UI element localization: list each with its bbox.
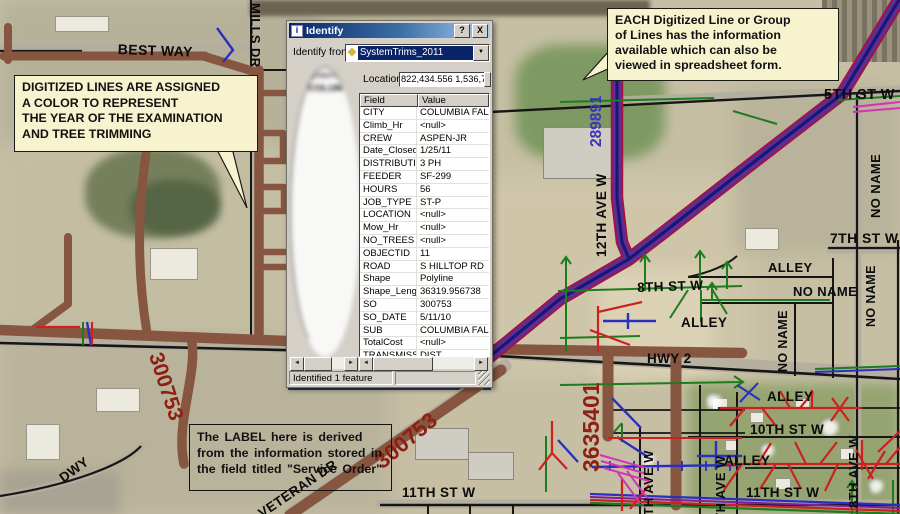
table-hscrollbar[interactable]: ◄ ► (359, 357, 488, 369)
table-row[interactable]: TRANSMISSIDIST (360, 350, 489, 357)
field-cell: FEEDER (360, 171, 417, 183)
status-bar: Identified 1 feature (289, 371, 490, 385)
field-cell: OBJECTID (360, 248, 417, 260)
callout-line: of Lines has the information (615, 28, 831, 43)
table-row[interactable]: Climb_Hr<null> (360, 120, 489, 133)
identify-from-label: Identify from: (293, 47, 353, 58)
field-cell: JOB_TYPE (360, 197, 417, 209)
close-button[interactable]: X (472, 24, 488, 38)
value-cell: S HILLTOP RD (417, 261, 489, 273)
table-row[interactable]: LOCATION<null> (360, 209, 489, 222)
selected-layer: SystemTrims_2011 (358, 46, 473, 60)
callout-line: THE YEAR OF THE EXAMINATION (22, 111, 250, 127)
street-label: 5TH ST W (824, 88, 895, 103)
layer-icon: ❖ (347, 48, 357, 59)
tree-root-label: SystemTrims_2011 (305, 70, 360, 81)
value-cell: ASPEN-JR (417, 133, 489, 145)
results-tree[interactable]: − SystemTrims_2011 COLUMBIA FALLS (290, 67, 360, 357)
help-button[interactable]: ? (454, 24, 470, 38)
value-column-header[interactable]: Value (418, 94, 489, 107)
table-row[interactable]: CREWASPEN-JR (360, 133, 489, 146)
callout-line: The LABEL here is derived (197, 429, 384, 445)
service-order-label: 289891 (589, 95, 605, 147)
table-row[interactable]: SO300753 (360, 299, 489, 312)
dialog-title: Identify (306, 25, 452, 37)
collapse-icon[interactable]: − (293, 71, 303, 81)
field-cell: Climb_Hr (360, 120, 417, 132)
value-cell: <null> (417, 120, 489, 132)
value-cell: ST-P (417, 197, 489, 209)
dialog-titlebar[interactable]: i Identify ? X (289, 23, 490, 38)
value-cell: 3 PH (417, 158, 489, 170)
street-label: NO NAME (793, 285, 857, 298)
status-panel (395, 371, 476, 385)
tree-item-columbia-falls[interactable]: COLUMBIA FALLS (291, 81, 359, 94)
value-cell: 1/25/11 (417, 145, 489, 157)
field-cell: SUB (360, 325, 417, 337)
tree-child-label: COLUMBIA FALLS (308, 83, 360, 94)
scroll-left-icon[interactable]: ◄ (290, 357, 304, 371)
callout-label-derived: The LABEL here is derived from the infor… (189, 424, 392, 491)
table-row[interactable]: SUBCOLUMBIA FALLS (360, 325, 489, 338)
identify-icon: i (291, 25, 303, 37)
value-cell: 11 (417, 248, 489, 260)
location-button[interactable] (484, 72, 491, 87)
table-row[interactable]: JOB_TYPEST-P (360, 197, 489, 210)
map-canvas: BEST WAYMILLS DR5TH ST W7TH ST WNO NAMEA… (0, 0, 900, 514)
service-order-label: 300753 (145, 350, 187, 423)
callout-line: DIGITIZED LINES ARE ASSIGNED (22, 80, 250, 96)
tree-root-item[interactable]: − SystemTrims_2011 (291, 68, 359, 81)
service-order-label: 3635401 (580, 382, 603, 472)
street-label: BEST WAY (118, 42, 193, 59)
dropdown-arrow-icon[interactable]: ▼ (473, 45, 489, 61)
street-label: ALLEY (724, 454, 770, 468)
scroll-right-icon[interactable]: ► (474, 357, 488, 371)
value-cell: 56 (417, 184, 489, 196)
value-cell: <null> (417, 337, 489, 349)
value-cell: Polyline (417, 273, 489, 285)
table-row[interactable]: SO_DATE5/11/10 (360, 312, 489, 325)
street-label: 10TH ST W (750, 423, 824, 437)
field-cell: Mow_Hr (360, 222, 417, 234)
street-label: NO NAME (865, 265, 878, 327)
status-text: Identified 1 feature (289, 371, 393, 385)
callout-line: available which can also be (615, 43, 831, 58)
table-body: CITYCOLUMBIA FALLSClimb_Hr<null>CREWASPE… (360, 107, 489, 357)
field-cell: Shape (360, 273, 417, 285)
callout-line: A COLOR TO REPRESENT (22, 96, 250, 112)
field-cell: NO_TREES (360, 235, 417, 247)
value-cell: 36319.956738 (417, 286, 489, 298)
value-cell: SF-299 (417, 171, 489, 183)
callout-each-line-info: EACH Digitized Line or Group of Lines ha… (607, 8, 839, 81)
callout-line: EACH Digitized Line or Group (615, 13, 831, 28)
field-cell: TRANSMISSI (360, 350, 417, 357)
value-cell: <null> (417, 235, 489, 247)
table-row[interactable]: Shape_Length36319.956738 (360, 286, 489, 299)
callout-line: AND TREE TRIMMING (22, 127, 250, 143)
value-cell: COLUMBIA FALLS (417, 107, 489, 119)
callout-line: viewed in spreadsheet form. (615, 58, 831, 73)
street-label: 11TH ST W (746, 486, 819, 500)
table-row[interactable]: Date_Closed1/25/11 (360, 145, 489, 158)
street-label: 11TH ST W (402, 486, 475, 500)
field-cell: LOCATION (360, 209, 417, 221)
street-label: ALLEY (767, 390, 813, 404)
table-row[interactable]: Mow_Hr<null> (360, 222, 489, 235)
callout-line: the field titled "Service Order" (197, 461, 384, 477)
identify-dialog: i Identify ? X Identify from: ❖ SystemTr… (286, 20, 493, 388)
street-label: 7TH ST W (830, 231, 899, 245)
attributes-table: Field Value CITYCOLUMBIA FALLSClimb_Hr<n… (359, 93, 490, 357)
field-column-header[interactable]: Field (360, 94, 418, 107)
identify-from-select[interactable]: ❖ SystemTrims_2011 ▼ (345, 44, 490, 62)
field-cell: CREW (360, 133, 417, 145)
resize-grip[interactable] (478, 371, 490, 385)
location-value[interactable]: 822,434.556 1,536,726. (399, 72, 486, 87)
field-cell: Date_Closed (360, 145, 417, 157)
street-label: 8TH ST W (637, 279, 704, 295)
scrollbar-thumb[interactable] (304, 357, 332, 371)
field-cell: SO_DATE (360, 312, 417, 324)
table-row[interactable]: NO_TREES<null> (360, 235, 489, 248)
scrollbar-thumb[interactable] (373, 357, 433, 371)
field-cell: CITY (360, 107, 417, 119)
table-row[interactable]: ShapePolyline (360, 273, 489, 286)
value-cell: COLUMBIA FALLS (417, 325, 489, 337)
value-cell: <null> (417, 222, 489, 234)
field-cell: ROAD (360, 261, 417, 273)
value-cell: 300753 (417, 299, 489, 311)
value-cell: <null> (417, 209, 489, 221)
tree-elbow (299, 85, 306, 93)
street-label: 8TH AVE W (847, 435, 860, 508)
street-label: MILLS DR (249, 3, 262, 68)
field-cell: SO (360, 299, 417, 311)
street-label: HWY 2 (647, 352, 692, 366)
table-row[interactable]: TotalCost<null> (360, 337, 489, 350)
value-cell: 5/11/10 (417, 312, 489, 324)
street-label: NO NAME (777, 310, 790, 372)
callout-line: from the information stored in (197, 445, 384, 461)
table-row[interactable]: FEEDERSF-299 (360, 171, 489, 184)
street-label: 10TH AVE W (714, 455, 727, 514)
table-row[interactable]: ROADS HILLTOP RD (360, 261, 489, 274)
table-header: Field Value (360, 94, 489, 107)
scroll-right-icon[interactable]: ► (344, 357, 358, 371)
callout-digitized-lines: DIGITIZED LINES ARE ASSIGNED A COLOR TO … (14, 75, 258, 152)
value-cell: DIST (417, 350, 489, 357)
street-label: ALLEY (768, 261, 813, 274)
street-label: ALLEY (681, 316, 727, 330)
street-label: 12TH AVE W (595, 173, 609, 257)
field-cell: TotalCost (360, 337, 417, 349)
street-label: NO NAME (869, 154, 882, 218)
street-label: 11TH AVE W (642, 450, 655, 514)
table-row[interactable]: OBJECTID11 (360, 248, 489, 261)
table-row[interactable]: DISTRIBUTI3 PH (360, 158, 489, 171)
field-cell: HOURS (360, 184, 417, 196)
field-cell: Shape_Length (360, 286, 417, 298)
tree-hscrollbar[interactable]: ◄ ► (290, 357, 358, 369)
scroll-left-icon[interactable]: ◄ (359, 357, 373, 371)
field-cell: DISTRIBUTI (360, 158, 417, 170)
table-row[interactable]: CITYCOLUMBIA FALLS (360, 107, 489, 120)
table-row[interactable]: HOURS56 (360, 184, 489, 197)
street-label: DWY (57, 455, 91, 485)
